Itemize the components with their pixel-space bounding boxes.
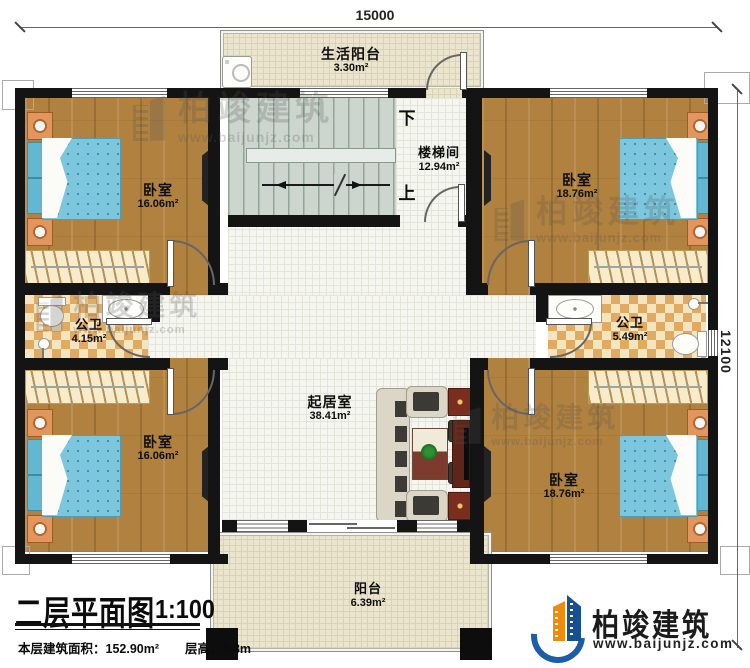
door-life-balcony bbox=[460, 52, 467, 90]
wall-h-right-bottom-a bbox=[470, 358, 488, 370]
room-area: 16.06m² bbox=[108, 450, 208, 463]
floor-corridor bbox=[228, 215, 466, 295]
wall-living-bottom-3 bbox=[397, 520, 417, 532]
door-bathroom-right bbox=[546, 318, 592, 325]
page-title: 二层平面图 bbox=[15, 586, 155, 635]
room-label-life-balcony: 生活阳台 3.30m² bbox=[293, 46, 409, 75]
sliding-door-leaf bbox=[347, 527, 395, 529]
sliding-door-leaf bbox=[309, 523, 357, 525]
sofa-chaise-top bbox=[406, 386, 448, 418]
nightstand bbox=[27, 112, 53, 140]
wall-h-left-bottom-b bbox=[212, 358, 228, 370]
window-bedroom-br bbox=[550, 554, 647, 564]
room-area: 16.06m² bbox=[108, 198, 208, 211]
tv-bedroom-tr bbox=[484, 150, 491, 206]
room-area: 6.39m² bbox=[318, 597, 418, 610]
room-area: 12.94m² bbox=[400, 161, 478, 174]
sofa-main bbox=[376, 388, 410, 522]
balcony-pillar-right bbox=[460, 628, 492, 660]
floor-middle-band bbox=[148, 295, 536, 358]
window-stairwell-balcony bbox=[300, 88, 388, 98]
nightstand bbox=[27, 515, 53, 543]
wall-right bbox=[708, 88, 718, 564]
plant bbox=[421, 444, 437, 460]
room-name: 阳台 bbox=[318, 582, 418, 597]
stair-down-label: 下 bbox=[397, 109, 417, 129]
room-label-bedroom-br: 卧室 18.76m² bbox=[514, 472, 614, 501]
wall-h-left-top-a bbox=[15, 283, 170, 295]
window-bedroom-bl bbox=[72, 554, 170, 564]
washing-machine bbox=[222, 56, 252, 88]
room-name: 楼梯间 bbox=[400, 146, 478, 161]
room-name: 卧室 bbox=[527, 172, 627, 188]
tv-cabinet-top bbox=[448, 388, 472, 416]
sofa-chaise-bottom bbox=[406, 490, 448, 522]
tv-screen bbox=[464, 428, 469, 480]
wardrobe-br bbox=[588, 370, 708, 404]
wall-stairwell-right bbox=[466, 88, 482, 295]
dim-box-bottom-right bbox=[720, 546, 750, 575]
room-area: 38.41m² bbox=[280, 410, 380, 423]
wardrobe-tl bbox=[25, 250, 150, 284]
dimension-right-label: 12100 bbox=[718, 330, 734, 374]
title-underline-thin bbox=[15, 629, 200, 630]
door-bedroom-br bbox=[528, 368, 535, 415]
room-label-bedroom-tr: 卧室 18.76m² bbox=[527, 172, 627, 201]
room-name: 卧室 bbox=[108, 434, 208, 450]
stair-handrail bbox=[246, 148, 396, 163]
company-logo-icon bbox=[531, 595, 587, 657]
room-name: 起居室 bbox=[280, 394, 380, 410]
floor-area-text: 本层建筑面积：152.90m² bbox=[18, 638, 159, 657]
door-stair-landing bbox=[458, 184, 465, 222]
room-area: 3.30m² bbox=[293, 62, 409, 75]
wall-bedroom-br-left bbox=[470, 358, 484, 564]
floor-height-text: 层高：3.3m bbox=[185, 638, 251, 657]
room-area: 5.49m² bbox=[587, 331, 673, 344]
room-label-stairwell: 楼梯间 12.94m² bbox=[400, 146, 478, 174]
room-label-bathroom-left: 公卫 4.15m² bbox=[46, 318, 132, 346]
shower-head-right bbox=[688, 298, 700, 310]
wall-h-right-top-a bbox=[470, 283, 488, 295]
nightstand bbox=[27, 409, 53, 437]
room-name: 公卫 bbox=[46, 318, 132, 333]
room-name: 生活阳台 bbox=[293, 46, 409, 62]
floor-plan-canvas: 生活阳台 3.30m² 楼梯间 12.94m² 下 上 卧室 16.06m² 卧… bbox=[0, 0, 750, 668]
room-area: 4.15m² bbox=[46, 333, 132, 346]
room-label-balcony: 阳台 6.39m² bbox=[318, 582, 418, 610]
window-bedroom-tl bbox=[72, 88, 167, 98]
wall-left bbox=[15, 88, 25, 564]
room-label-living: 起居室 38.41m² bbox=[280, 394, 380, 423]
wall-stairs-bottom bbox=[228, 215, 400, 227]
door-bedroom-tr bbox=[528, 240, 535, 287]
door-bedroom-tl bbox=[167, 240, 174, 287]
wall-living-bottom-2 bbox=[288, 520, 307, 532]
dimension-line-right bbox=[737, 90, 738, 648]
sliding-door-living-balcony bbox=[307, 520, 397, 532]
tv-bedroom-br bbox=[484, 446, 491, 502]
tv-cabinet-bottom bbox=[448, 492, 472, 520]
toilet-right bbox=[672, 333, 699, 355]
company-website: www.baijunjz.com bbox=[593, 636, 734, 651]
nightstand bbox=[27, 218, 53, 246]
dimension-top-label: 15000 bbox=[330, 7, 420, 23]
sink-left bbox=[108, 299, 144, 319]
room-name: 卧室 bbox=[514, 472, 614, 488]
dimension-line-top bbox=[20, 27, 718, 28]
wardrobe-tr bbox=[588, 250, 708, 284]
room-area: 18.76m² bbox=[527, 188, 627, 201]
wall-living-bottom-1 bbox=[222, 520, 237, 532]
room-label-bathroom-right: 公卫 5.49m² bbox=[587, 316, 673, 344]
room-label-bedroom-bl: 卧室 16.06m² bbox=[108, 434, 208, 463]
stair-arrow-right bbox=[352, 181, 362, 189]
title-underline-thick bbox=[15, 623, 200, 626]
window-living-right bbox=[417, 520, 457, 532]
wall-h-right-top-b bbox=[530, 283, 718, 295]
door-bedroom-bl bbox=[167, 368, 174, 415]
wall-h-left-bottom-a bbox=[15, 358, 170, 370]
plan-info: 本层建筑面积：152.90m² 层高：3.3m bbox=[18, 638, 251, 657]
stair-up-label: 上 bbox=[397, 184, 417, 204]
plan-scale: 1:100 bbox=[155, 594, 215, 625]
room-name: 卧室 bbox=[108, 182, 208, 198]
room-name: 公卫 bbox=[587, 316, 673, 331]
window-living-left bbox=[237, 520, 288, 532]
room-label-bedroom-tl: 卧室 16.06m² bbox=[108, 182, 208, 211]
wall-h-right-bottom-b bbox=[530, 358, 718, 370]
window-bedroom-tr bbox=[550, 88, 647, 98]
window-bathroom-right bbox=[708, 330, 718, 356]
wardrobe-bl bbox=[25, 370, 150, 404]
stair-arrow-left bbox=[276, 181, 286, 189]
room-area: 18.76m² bbox=[514, 488, 614, 501]
